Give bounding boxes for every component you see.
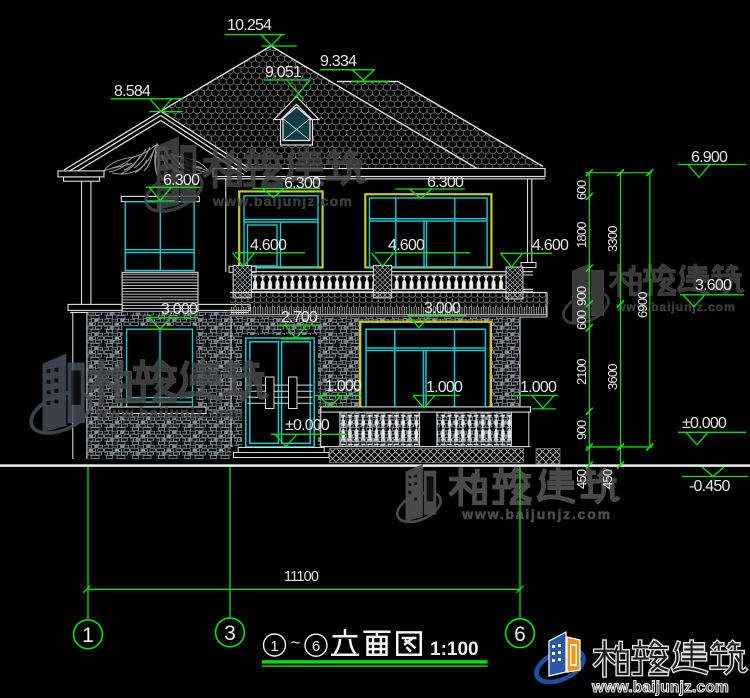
svg-text:11100: 11100 [284,569,319,585]
svg-text:6.300: 6.300 [163,172,200,189]
svg-text:6900: 6900 [635,292,650,318]
svg-text:6.300: 6.300 [427,174,464,191]
svg-text:1: 1 [82,624,94,647]
svg-text:3.000: 3.000 [161,301,198,318]
svg-text:3.000: 3.000 [424,300,461,317]
svg-text:450: 450 [574,469,589,489]
svg-text:10.254: 10.254 [227,17,272,34]
svg-text:~: ~ [291,633,301,652]
svg-text:600: 600 [574,180,589,200]
svg-text:±0.000: ±0.000 [682,415,727,432]
svg-text:9.334: 9.334 [320,53,357,70]
svg-text:3: 3 [224,622,236,645]
svg-text:900: 900 [574,286,589,306]
svg-text:www.baijunjz.com: www.baijunjz.com [615,300,736,314]
svg-text:3600: 3600 [605,364,620,390]
svg-text:6: 6 [514,623,526,646]
svg-text:1.000: 1.000 [426,379,463,396]
svg-text:1.000: 1.000 [520,379,557,396]
svg-text:6: 6 [312,638,320,655]
svg-text:1800: 1800 [574,222,589,248]
svg-text:600: 600 [574,310,589,330]
svg-text:www.baijunjz.com: www.baijunjz.com [212,193,353,209]
svg-text:6.900: 6.900 [691,149,728,166]
svg-text:1:100: 1:100 [430,639,479,660]
svg-text:2.700: 2.700 [281,309,318,326]
svg-text:±0.000: ±0.000 [285,417,330,434]
svg-text:4.600: 4.600 [388,237,425,254]
svg-text:900: 900 [574,420,589,440]
svg-text:8.584: 8.584 [114,83,151,100]
svg-text:4.600: 4.600 [532,237,569,254]
svg-text:1: 1 [270,638,278,655]
svg-text:-0.450: -0.450 [689,478,730,495]
svg-text:450: 450 [600,469,615,489]
svg-text:www.baijunjz.com: www.baijunjz.com [591,679,729,696]
svg-text:2100: 2100 [574,359,589,385]
svg-text:9.051: 9.051 [265,64,302,81]
svg-text:www.baijunjz.com: www.baijunjz.com [95,405,245,422]
svg-text:www.baijunjz.com: www.baijunjz.com [461,506,612,522]
svg-text:6.300: 6.300 [284,175,321,192]
svg-text:3300: 3300 [605,226,620,252]
svg-text:4.600: 4.600 [250,237,287,254]
svg-text:1.000: 1.000 [325,378,362,395]
svg-text:3.600: 3.600 [695,277,732,294]
